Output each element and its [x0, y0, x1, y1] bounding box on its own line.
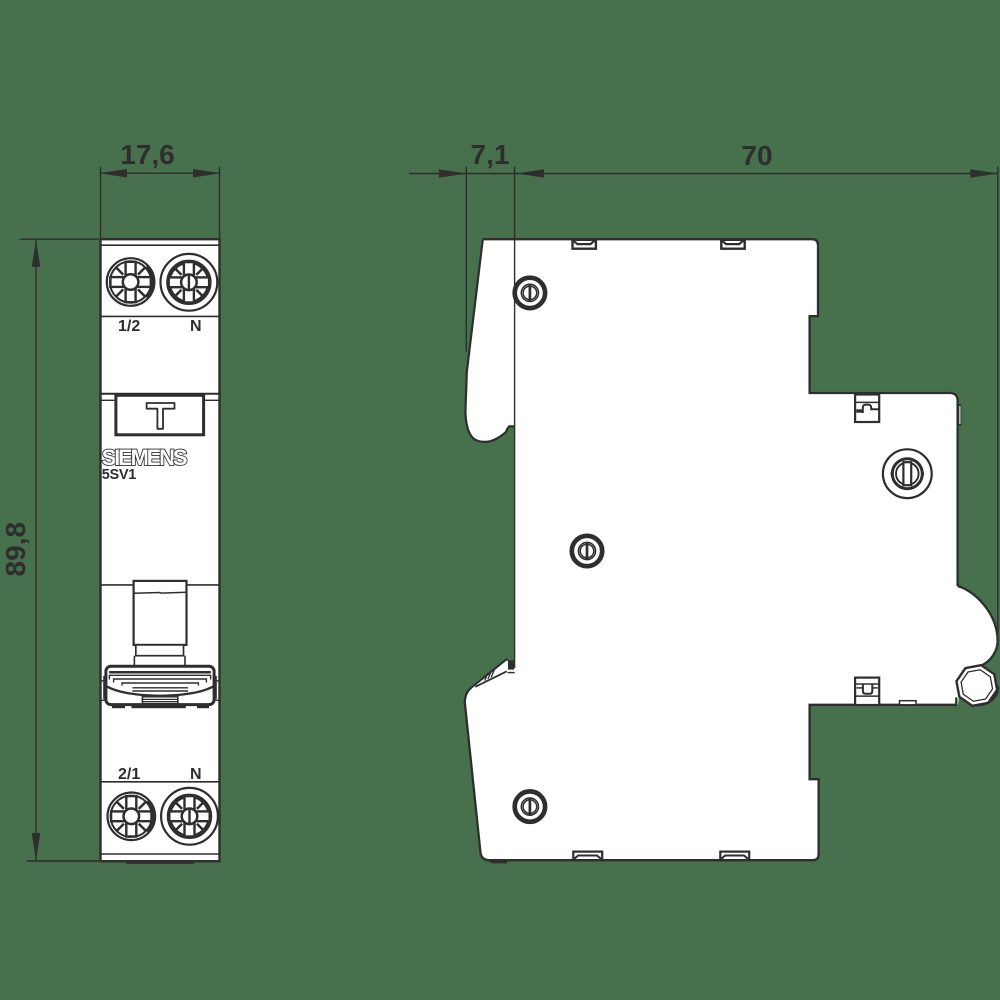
svg-text:N: N — [190, 766, 202, 783]
svg-text:17,6: 17,6 — [120, 139, 175, 170]
svg-text:70: 70 — [741, 140, 772, 171]
svg-text:5SV1: 5SV1 — [102, 467, 137, 483]
svg-text:2/1: 2/1 — [118, 766, 140, 783]
svg-text:N: N — [190, 318, 202, 335]
svg-text:1/2: 1/2 — [118, 318, 140, 335]
svg-text:7,1: 7,1 — [471, 139, 510, 170]
svg-text:89,8: 89,8 — [0, 522, 31, 577]
